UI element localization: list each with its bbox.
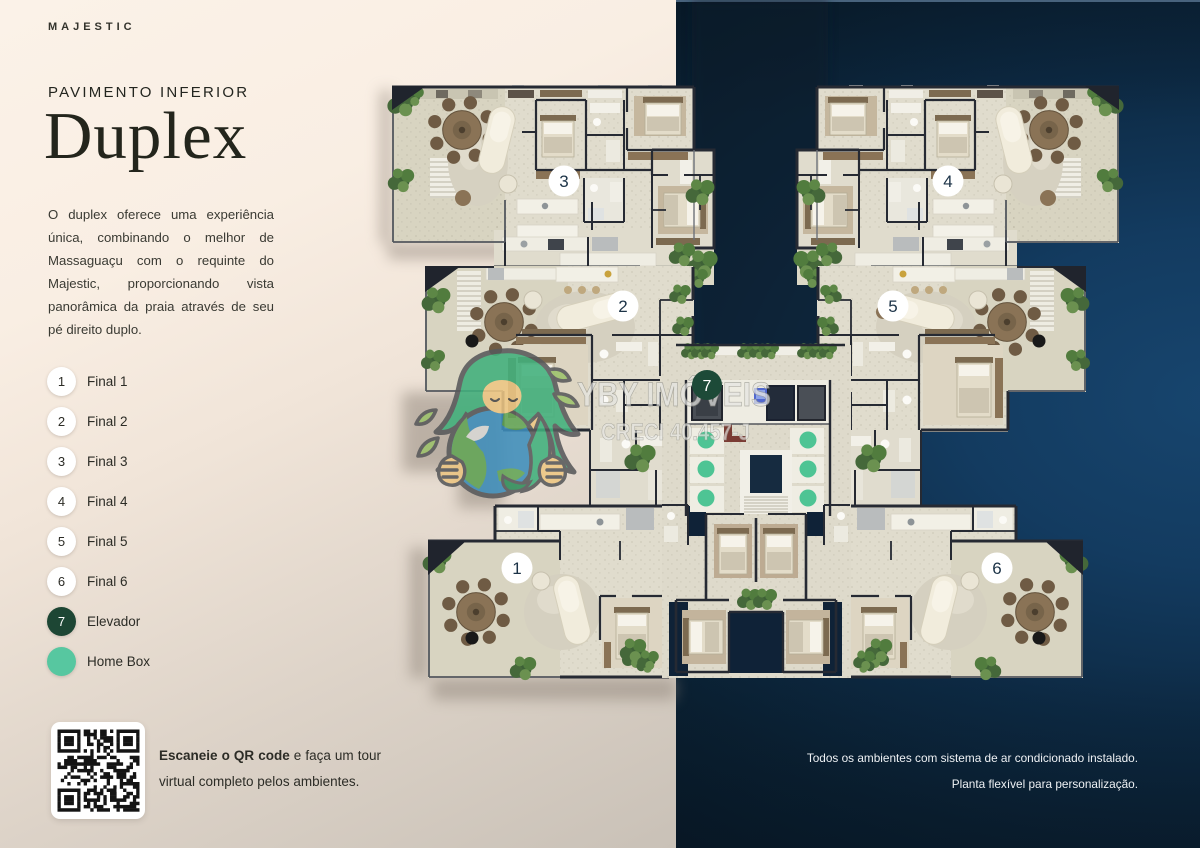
svg-text:YBY IMÓVEIS: YBY IMÓVEIS — [577, 376, 771, 414]
svg-text:6: 6 — [992, 559, 1001, 578]
svg-text:CRECI 40.457-J: CRECI 40.457-J — [601, 419, 750, 446]
svg-text:5: 5 — [888, 297, 897, 316]
svg-text:3: 3 — [559, 172, 568, 191]
svg-text:7: 7 — [703, 378, 712, 395]
svg-text:4: 4 — [943, 172, 952, 191]
svg-text:2: 2 — [618, 297, 627, 316]
svg-text:1: 1 — [512, 559, 521, 578]
